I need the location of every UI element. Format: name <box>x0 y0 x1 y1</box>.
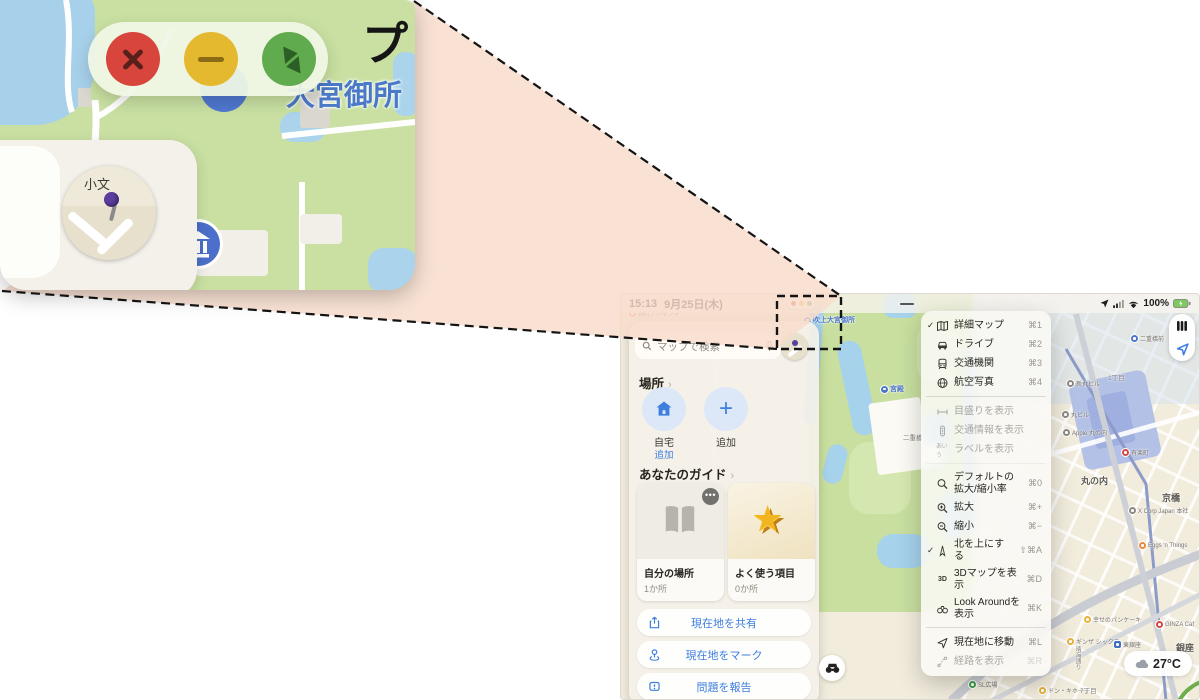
menu-item-label: Look Aroundを表示 <box>954 597 1021 621</box>
car-icon <box>936 339 949 351</box>
menu-item-shortcut: ⌘1 <box>1028 320 1042 331</box>
menu-item-label: 交通情報を表示 <box>954 425 1036 437</box>
temperature: 27°C <box>1153 657 1181 671</box>
menu-item-shortcut: ⌘K <box>1027 603 1042 614</box>
map-label-text: 丸ビル <box>1071 410 1089 419</box>
clock: 15:13 <box>629 298 657 310</box>
menu-title[interactable] <box>846 303 860 305</box>
map-label-text: GINZA Caf <box>1165 622 1194 628</box>
close-button-magnified[interactable] <box>106 32 160 86</box>
action-button-label: 問題を報告 <box>697 679 752 695</box>
map-label[interactable]: 7丁目 <box>1080 685 1097 695</box>
guide-card-title: 自分の場所 <box>644 565 717 580</box>
sidebar: マップで検索 場所› 自宅 追加 + 追加 あなたのガイド› <box>629 321 819 700</box>
poi-icon <box>1131 335 1138 342</box>
map-label[interactable]: X Corp Japan 本社 <box>1129 506 1188 515</box>
close-button[interactable] <box>791 301 796 306</box>
map-label[interactable]: 新丸ビル <box>1067 379 1100 388</box>
map-label[interactable]: 東銀座 <box>1114 640 1141 649</box>
star-icon: ★★ <box>752 501 792 541</box>
pin-in-avatar <box>792 340 798 346</box>
map-label[interactable]: Apple 丸の内 <box>1063 428 1107 437</box>
magnified-title-text: プ <box>362 8 408 74</box>
lookaround-icon <box>936 603 949 615</box>
avatar-map-text: 小文 <box>84 174 110 193</box>
menu-item-label: ラベルを表示 <box>954 444 1036 456</box>
threed-icon: 3D <box>936 574 949 586</box>
search-placeholder: マップで検索 <box>657 339 760 354</box>
poi-icon <box>1122 449 1129 456</box>
menu-item-label: 詳細マップ <box>954 320 1022 332</box>
view-menu-item[interactable]: ✓ デフォルトの拡大/縮小率 ⌘0 <box>921 469 1051 498</box>
cellular-icon <box>1113 300 1124 308</box>
chevron-right-icon: › <box>731 470 735 482</box>
report-icon <box>648 680 661 693</box>
more-options-button[interactable]: ••• <box>702 488 719 505</box>
menu-item-shortcut: ⌘− <box>1028 521 1042 532</box>
map-label-text: Eggs 'n Things <box>1148 543 1187 549</box>
menu-item-label: 北を上にする <box>954 539 1013 563</box>
menu-item-label: 縮小 <box>954 521 1022 533</box>
fullscreen-button-magnified[interactable] <box>262 32 316 86</box>
inset-building <box>300 214 342 244</box>
guide-card-count: 1か所 <box>644 582 717 595</box>
map-icon <box>936 320 949 332</box>
zoomin-icon <box>936 502 949 514</box>
view-menu-item[interactable]: ✓ 詳細マップ ⌘1 <box>921 316 1051 335</box>
pin-head <box>104 192 119 207</box>
poi-icon <box>969 681 976 688</box>
map-label[interactable]: 二重橋 <box>903 432 923 442</box>
look-around-button[interactable] <box>819 655 845 681</box>
menu-title[interactable] <box>873 303 887 305</box>
map-label-text: 新丸ビル <box>1076 379 1100 388</box>
menu-item-shortcut: ⌘R <box>1027 656 1043 667</box>
scale-icon <box>936 406 949 418</box>
view-menu: ✓ 詳細マップ ⌘1 ✓ ドライブ ⌘2 ✓ 交通機関 ⌘3 ✓ 航空写真 ⌘4 <box>921 311 1051 676</box>
binoculars-icon <box>825 662 840 674</box>
map-label[interactable]: 京橋 <box>1162 491 1180 504</box>
weather-widget[interactable]: 27°C <box>1124 651 1192 676</box>
map-label-text: 1丁目 <box>1108 372 1125 382</box>
minimize-icon <box>198 57 224 62</box>
magnified-inset: プ 大宮御所 小文 <box>0 0 415 290</box>
plus-icon: + <box>704 387 748 431</box>
place-add-link[interactable]: 追加 <box>642 447 686 461</box>
map-label-text: 東銀座 <box>1123 640 1141 649</box>
map-label[interactable]: 丸の内 <box>1081 474 1108 487</box>
location-icon <box>936 637 949 649</box>
guide-card[interactable]: ★★ ••• よく使う項目 0か所 <box>728 483 815 601</box>
menu-item-shortcut: ⌘0 <box>1028 478 1042 489</box>
location-status-icon <box>1100 299 1109 308</box>
menu-item-label: 交通機関 <box>954 358 1022 370</box>
map-label-text: SL広場 <box>978 680 997 689</box>
avatar-magnified[interactable]: 小文 <box>62 166 156 260</box>
poi-icon <box>1114 641 1121 648</box>
menu-item-label: 拡大 <box>954 502 1022 514</box>
action-button-label: 現在地をマーク <box>686 647 763 663</box>
map-label-text: 二重橋前 <box>1140 334 1164 343</box>
action-button[interactable]: 現在地をマーク <box>637 641 811 668</box>
fullscreen-icon <box>262 32 316 86</box>
guides-heading[interactable]: あなたのガイド› <box>639 464 734 483</box>
maps-stack-icon[interactable] <box>1176 320 1188 332</box>
poi-icon <box>1129 507 1136 514</box>
menu-item-shortcut: ⌘+ <box>1028 502 1042 513</box>
view-menu-item[interactable]: ✓ 拡大 ⌘+ <box>921 498 1051 517</box>
map-label-text: 二重橋 <box>903 432 923 442</box>
map-label-text: 幸せのパンケーキ <box>1093 615 1141 624</box>
menu-item-label: 航空写真 <box>954 377 1022 389</box>
battery-percent: 100% <box>1143 298 1169 309</box>
search-pill-magnified <box>0 146 60 278</box>
checkmark-icon: ✓ <box>927 320 936 331</box>
menu-item-label: 経路を表示 <box>954 656 1021 668</box>
menu-item-shortcut: ⌘D <box>1027 574 1043 585</box>
guide-card-count: 0か所 <box>735 582 808 595</box>
menu-item-shortcut: ⌘3 <box>1028 358 1042 369</box>
poi-icon <box>1039 687 1046 694</box>
poi-icon <box>1156 621 1163 628</box>
menu-item-label: 現在地に移動 <box>954 637 1022 649</box>
minimize-button-magnified[interactable] <box>184 32 238 86</box>
view-menu-item[interactable]: ✓ 縮小 ⌘− <box>921 517 1051 536</box>
poi-icon <box>1063 429 1070 436</box>
window-controls[interactable] <box>788 298 815 309</box>
menu-item-shortcut: ⌘L <box>1028 637 1042 648</box>
map-label[interactable]: 1丁目 <box>1108 372 1125 382</box>
inset-building <box>78 88 91 107</box>
minimize-button[interactable] <box>799 301 804 306</box>
map-controls <box>1169 314 1195 361</box>
map-label-text: 7丁目 <box>1080 685 1097 695</box>
book-icon <box>661 501 701 541</box>
view-menu-item[interactable]: ✓ 経路を表示 ⌘R <box>921 652 1051 671</box>
current-location-icon[interactable] <box>1176 343 1189 356</box>
map-label-text: Apple 丸の内 <box>1072 428 1107 437</box>
map-label-text: 晴海通り <box>1073 646 1082 670</box>
view-menu-item[interactable]: ✓ ドライブ ⌘2 <box>921 335 1051 354</box>
map-label-text: 宮殿 <box>890 384 904 394</box>
menu-item-label: デフォルトの拡大/縮小率 <box>954 472 1022 496</box>
action-button-label: 現在地を共有 <box>691 615 757 631</box>
map-label[interactable]: 晴海通り <box>1073 646 1082 670</box>
share-icon <box>648 616 661 629</box>
status-icons: 100% <box>1100 298 1191 309</box>
mic-icon[interactable] <box>765 341 774 352</box>
view-menu-item[interactable]: ✓ 航空写真 ⌘4 <box>921 373 1051 392</box>
route-icon <box>936 656 949 668</box>
checkmark-icon: ✓ <box>927 545 936 556</box>
menu-title[interactable] <box>819 303 833 305</box>
map-label-text: ギンザ シックス <box>1076 637 1120 646</box>
menu-item-label: 目盛りを表示 <box>954 406 1036 418</box>
map-label-text: 京橋 <box>1162 491 1180 504</box>
poi-icon <box>1067 638 1074 645</box>
zoomout-icon <box>936 521 949 533</box>
menu-title[interactable] <box>954 303 968 305</box>
map-label[interactable]: Eggs 'n Things <box>1139 542 1187 549</box>
map-label-text: 吹上大宮御所 <box>813 315 855 325</box>
zoomdef-icon <box>936 478 949 490</box>
guide-card-title: よく使う項目 <box>735 565 808 580</box>
avatar[interactable] <box>781 333 808 360</box>
menu-title[interactable] <box>927 303 941 305</box>
menu-list <box>819 303 968 305</box>
menu-title[interactable] <box>900 303 914 305</box>
map-label-text: 丸の内 <box>1081 474 1108 487</box>
transit-icon <box>936 358 949 370</box>
map-label[interactable]: 幸せのパンケーキ <box>1084 615 1141 624</box>
poi-icon <box>1062 411 1069 418</box>
date: 9月25日(木) <box>664 296 723 312</box>
map-label[interactable]: 有楽町 <box>1122 448 1149 457</box>
map-label[interactable]: 二重橋前 <box>1131 334 1164 343</box>
poi-icon <box>1139 542 1146 549</box>
menu-item-label: ドライブ <box>954 339 1022 351</box>
ipad-screenshot: 麹町アジャンタ 吹上大宮御所 宮殿 二重橋 二重橋前 1丁目 <box>620 293 1200 700</box>
view-menu-item[interactable]: ✓ 交通機関 ⌘3 <box>921 354 1051 373</box>
menu-bar: 15:13 9月25日(木) 100% <box>621 294 1199 313</box>
labels-icon: あいう <box>936 444 949 456</box>
poi-icon <box>881 386 888 393</box>
menu-item-shortcut: ⇧⌘A <box>1019 545 1042 556</box>
view-menu-item[interactable]: ✓ あいう ラベルを表示 <box>921 440 1051 459</box>
map-label[interactable]: 丸ビル <box>1062 410 1089 419</box>
callout-dashed-line-top <box>414 1 841 296</box>
menu-item-shortcut: ⌘2 <box>1028 339 1042 350</box>
guide-card[interactable]: ••• 自分の場所 1か所 <box>637 483 724 601</box>
menu-item-shortcut: ⌘4 <box>1028 377 1042 388</box>
map-label[interactable]: SL広場 <box>969 680 997 689</box>
poi-icon <box>1067 380 1074 387</box>
fullscreen-button[interactable] <box>807 301 812 306</box>
aerial-icon <box>936 377 949 389</box>
view-menu-item[interactable]: ✓ 交通情報を表示 <box>921 421 1051 440</box>
poi-icon <box>1084 616 1091 623</box>
view-menu-item[interactable]: ✓ 目盛りを表示 <box>921 402 1051 421</box>
view-menu-item[interactable]: ✓ 3D 3Dマップを表示 ⌘D <box>921 565 1051 594</box>
map-label[interactable]: ギンザ シックス <box>1067 637 1120 646</box>
menu-item-label: 3Dマップを表示 <box>954 568 1021 592</box>
wifi-icon <box>1128 300 1139 308</box>
cloud-icon <box>1135 659 1149 669</box>
place-label: 追加 <box>704 434 748 449</box>
map-label[interactable]: 宮殿 <box>881 384 904 394</box>
search-input[interactable]: マップで検索 <box>635 333 781 359</box>
compass-icon <box>936 545 949 557</box>
home-icon <box>642 387 686 431</box>
search-icon <box>642 341 652 351</box>
mark-icon <box>648 648 661 661</box>
traffic-icon <box>936 425 949 437</box>
view-menu-item[interactable]: ✓ 現在地に移動 ⌘L <box>921 633 1051 652</box>
view-menu-item[interactable]: ✓ 北を上にする ⇧⌘A <box>921 536 1051 565</box>
action-button[interactable]: 現在地を共有 <box>637 609 811 636</box>
map-label[interactable]: GINZA Caf <box>1156 621 1194 628</box>
map-label-text: X Corp Japan 本社 <box>1138 506 1188 515</box>
battery-icon <box>1173 299 1191 308</box>
action-button[interactable]: 問題を報告 <box>637 673 811 700</box>
map-label-text: 有楽町 <box>1131 448 1149 457</box>
view-menu-item[interactable]: ✓ Look Aroundを表示 ⌘K <box>921 594 1051 623</box>
